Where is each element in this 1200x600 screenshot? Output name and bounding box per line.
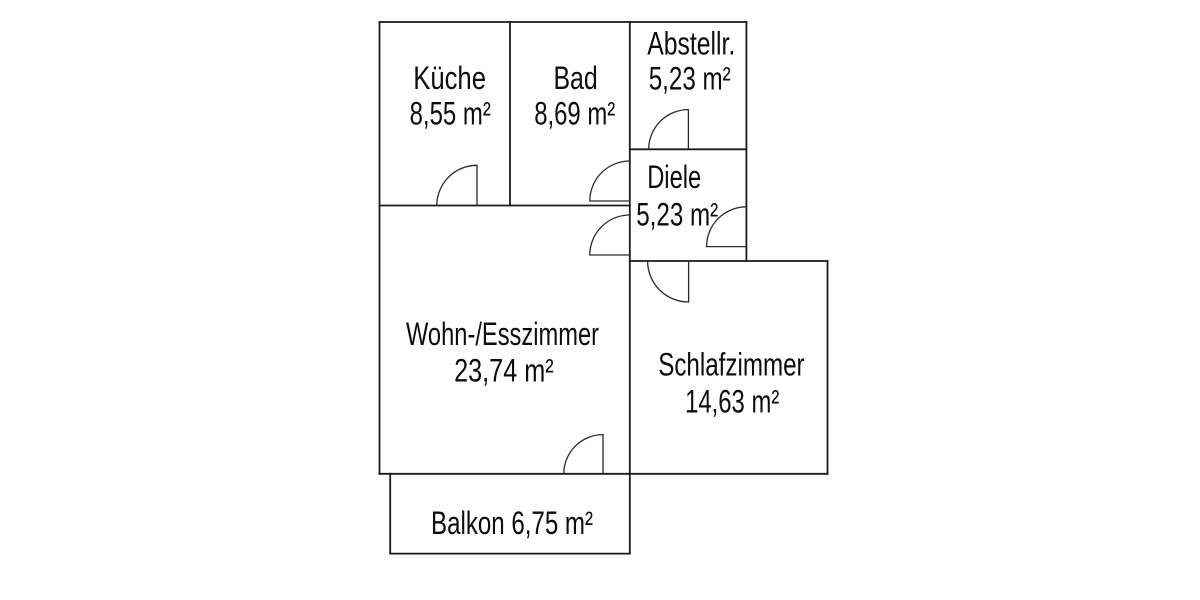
svg-text:Bad: Bad: [553, 60, 597, 96]
svg-text:5,23 m²: 5,23 m²: [649, 60, 731, 96]
svg-text:Balkon 6,75 m²: Balkon 6,75 m²: [431, 505, 593, 541]
svg-text:8,55 m²: 8,55 m²: [410, 96, 491, 132]
svg-text:14,63 m²: 14,63 m²: [685, 384, 779, 420]
svg-text:Küche: Küche: [413, 60, 486, 96]
svg-text:23,74 m²: 23,74 m²: [454, 353, 554, 389]
svg-text:8,69 m²: 8,69 m²: [534, 96, 615, 132]
svg-text:Schlafzimmer: Schlafzimmer: [658, 346, 805, 382]
svg-text:Diele: Diele: [647, 159, 701, 195]
svg-text:Wohn-/Esszimmer: Wohn-/Esszimmer: [406, 316, 599, 352]
svg-text:5,23 m²: 5,23 m²: [636, 197, 718, 233]
svg-text:Abstellr.: Abstellr.: [647, 26, 735, 62]
